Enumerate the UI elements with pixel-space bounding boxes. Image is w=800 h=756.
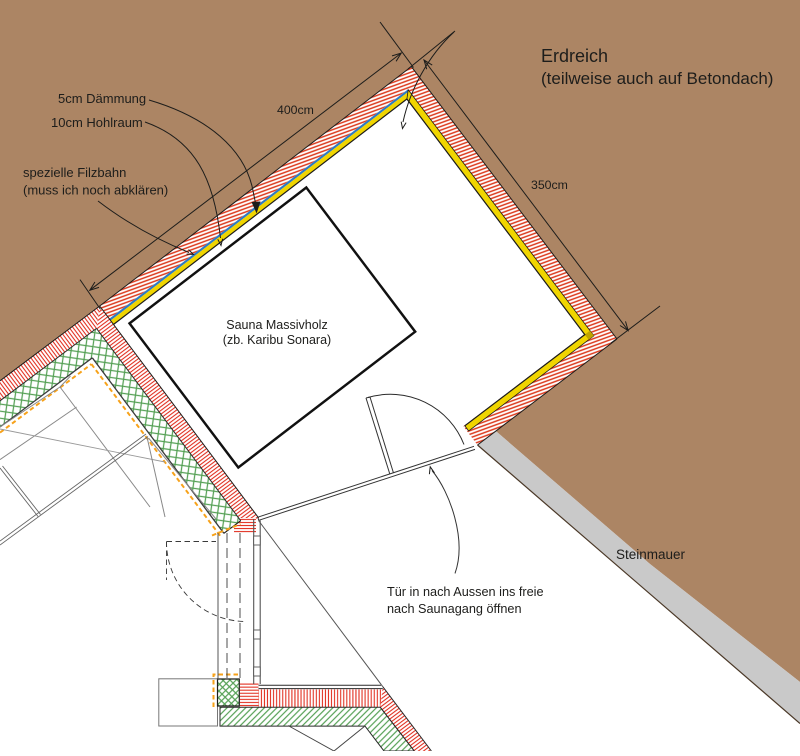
svg-text:Sauna Massivholz: Sauna Massivholz (226, 318, 327, 332)
svg-text:Steinmauer: Steinmauer (616, 547, 686, 562)
svg-text:Erdreich: Erdreich (541, 46, 608, 66)
svg-text:400cm: 400cm (277, 103, 314, 117)
svg-text:nach Saunagang öffnen: nach Saunagang öffnen (387, 602, 522, 616)
svg-text:5cm Dämmung: 5cm Dämmung (58, 91, 146, 106)
svg-text:350cm: 350cm (531, 178, 568, 192)
svg-text:(muss ich noch abklären): (muss ich noch abklären) (23, 183, 168, 198)
svg-text:(teilweise auch auf Betondach): (teilweise auch auf Betondach) (541, 69, 773, 88)
svg-text:spezielle Filzbahn: spezielle Filzbahn (23, 165, 126, 180)
svg-text:10cm Hohlraum: 10cm Hohlraum (51, 115, 143, 130)
svg-text:Tür in nach Aussen ins freie: Tür in nach Aussen ins freie (387, 585, 544, 599)
svg-text:(zb. Karibu Sonara): (zb. Karibu Sonara) (223, 333, 331, 347)
